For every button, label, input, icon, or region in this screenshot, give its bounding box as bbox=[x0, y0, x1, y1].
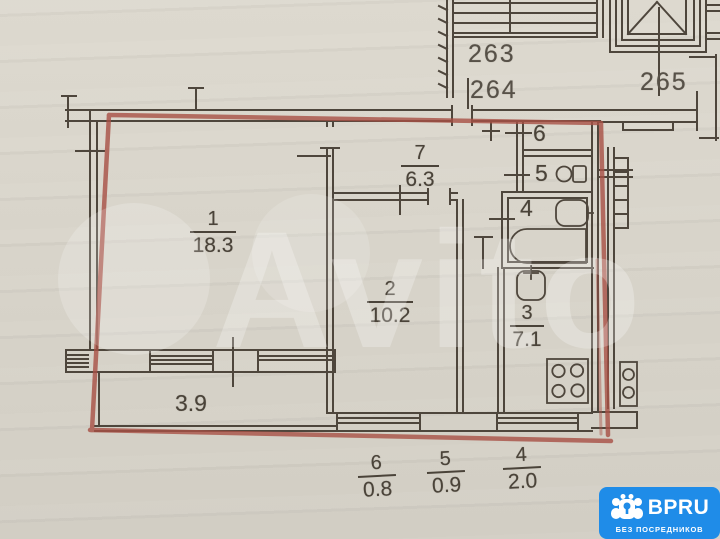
room-area: 6.3 bbox=[405, 169, 434, 190]
room-number: 6 bbox=[370, 453, 382, 474]
unit-number-263: 263 bbox=[468, 42, 516, 67]
fraction-bar bbox=[401, 165, 439, 167]
stairs-icon bbox=[439, 0, 603, 108]
room-number: 4 bbox=[515, 445, 527, 466]
room-7-label: 7 6.3 bbox=[390, 143, 450, 190]
room-number: 5 bbox=[439, 449, 451, 470]
bpru-logo-icon bbox=[610, 493, 644, 523]
annex-fraction-6: 6 0.8 bbox=[346, 451, 408, 501]
bpru-badge-row: BPRU bbox=[610, 493, 710, 523]
room-area: 0.8 bbox=[363, 478, 393, 500]
window-icons bbox=[327, 413, 592, 431]
watermark-circle bbox=[58, 203, 210, 355]
room-5-label: 5 bbox=[535, 162, 548, 185]
room-number: 7 bbox=[414, 143, 425, 163]
floorplan-photo: 263 264 265 1 18.3 7 6.3 2 10.2 3 7.1 6 … bbox=[0, 0, 720, 539]
toilet-icon bbox=[557, 166, 587, 182]
bpru-subtitle: БЕЗ ПОСРЕДНИКОВ bbox=[616, 525, 704, 534]
unit-number-264: 264 bbox=[470, 78, 518, 103]
bpru-badge: BPRU БЕЗ ПОСРЕДНИКОВ bbox=[599, 487, 720, 539]
annex-fraction-4: 4 2.0 bbox=[491, 443, 553, 493]
avito-watermark: Avito bbox=[212, 196, 646, 386]
bpru-title: BPRU bbox=[648, 496, 710, 520]
unit-number-265: 265 bbox=[640, 70, 688, 95]
room-6-label: 6 bbox=[533, 122, 546, 145]
room-area: 0.9 bbox=[432, 474, 462, 496]
room-area: 2.0 bbox=[508, 470, 538, 492]
annex-fraction-5: 5 0.9 bbox=[415, 447, 477, 497]
balcony-area-label: 3.9 bbox=[175, 392, 207, 415]
